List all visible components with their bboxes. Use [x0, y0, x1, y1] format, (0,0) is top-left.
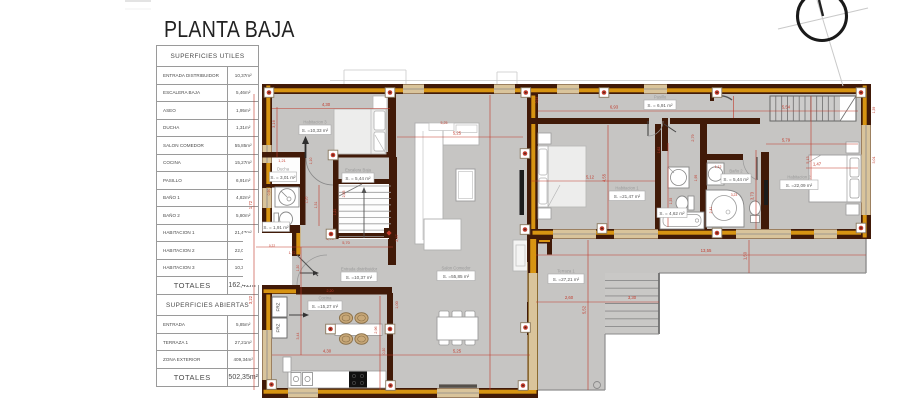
svg-text:S. =22,09 m²: S. =22,09 m² — [786, 183, 813, 188]
svg-text:1,72: 1,72 — [248, 200, 253, 209]
svg-text:Habitacion 2: Habitacion 2 — [787, 175, 811, 180]
svg-text:4,55: 4,55 — [602, 173, 607, 182]
svg-text:1,21: 1,21 — [333, 209, 337, 216]
svg-text:3,23: 3,23 — [731, 193, 738, 197]
svg-text:Baño 2: Baño 2 — [729, 169, 743, 174]
svg-text:5,13: 5,13 — [806, 156, 810, 163]
svg-text:S. =10,33 m²: S. =10,33 m² — [302, 128, 329, 133]
svg-text:1,50: 1,50 — [743, 251, 748, 260]
svg-text:3,01: 3,01 — [872, 157, 876, 164]
svg-text:2,79: 2,79 — [691, 134, 695, 141]
svg-text:1,47: 1,47 — [813, 162, 822, 167]
svg-text:1,00: 1,00 — [395, 301, 399, 308]
svg-text:3,30: 3,30 — [628, 295, 637, 300]
svg-text:1,95: 1,95 — [694, 175, 698, 182]
svg-text:0,93: 0,93 — [535, 97, 539, 104]
svg-text:S. = 3,01 m²: S. = 3,01 m² — [270, 175, 296, 180]
svg-text:2,41: 2,41 — [709, 207, 713, 214]
svg-text:S. = 5,44 m²: S. = 5,44 m² — [723, 177, 749, 182]
svg-text:FRZ: FRZ — [276, 302, 281, 311]
svg-text:S. =15,27 m²: S. =15,27 m² — [312, 304, 339, 309]
svg-text:1,12: 1,12 — [715, 165, 722, 169]
svg-text:6,93: 6,93 — [610, 105, 619, 110]
svg-text:3,16: 3,16 — [271, 119, 276, 128]
svg-text:Entrada distribuidor: Entrada distribuidor — [341, 267, 378, 272]
svg-text:Pasillo: Pasillo — [654, 95, 667, 100]
svg-text:3,73: 3,73 — [750, 191, 755, 200]
svg-text:2,20: 2,20 — [327, 289, 334, 293]
svg-text:3,44: 3,44 — [296, 333, 300, 340]
svg-text:Terraza 1: Terraza 1 — [557, 269, 575, 274]
svg-text:5,54: 5,54 — [782, 105, 791, 110]
svg-text:1,72: 1,72 — [289, 251, 296, 255]
svg-text:5,25: 5,25 — [441, 121, 448, 125]
svg-text:2,47: 2,47 — [395, 234, 399, 241]
svg-text:1,39: 1,39 — [872, 107, 876, 114]
svg-text:0,90: 0,90 — [267, 189, 271, 196]
svg-text:1,35: 1,35 — [669, 198, 673, 205]
svg-text:S. =21,47 m²: S. =21,47 m² — [614, 194, 641, 199]
svg-text:1,35: 1,35 — [305, 197, 309, 204]
svg-text:1,30: 1,30 — [296, 265, 300, 272]
svg-text:1,21: 1,21 — [278, 159, 285, 163]
svg-text:2,96: 2,96 — [374, 326, 378, 333]
svg-text:5,79: 5,79 — [782, 138, 791, 143]
svg-text:4,30: 4,30 — [322, 102, 331, 107]
svg-text:S. =10,37 m²: S. =10,37 m² — [346, 275, 373, 280]
svg-text:2,60: 2,60 — [565, 295, 574, 300]
svg-text:Salon Comedor: Salon Comedor — [441, 266, 471, 271]
svg-text:S. = 6,91 m²: S. = 6,91 m² — [647, 103, 673, 108]
svg-text:5,12: 5,12 — [586, 175, 595, 180]
svg-text:Habitacion 3: Habitacion 3 — [303, 120, 327, 125]
svg-text:S. = 5,44 m²: S. = 5,44 m² — [345, 176, 371, 181]
svg-text:S. =55,85 m²: S. =55,85 m² — [443, 274, 470, 279]
svg-text:FRZ: FRZ — [276, 323, 281, 332]
svg-text:Escalera Baja: Escalera Baja — [345, 168, 372, 173]
svg-text:Habitacion 1: Habitacion 1 — [615, 186, 639, 191]
svg-text:13,55: 13,55 — [701, 248, 712, 253]
svg-text:5,25: 5,25 — [453, 349, 462, 354]
svg-text:2,83: 2,83 — [342, 191, 346, 198]
svg-text:S. = 1,91 m²: S. = 1,91 m² — [263, 225, 289, 230]
svg-text:Ducha: Ducha — [277, 167, 290, 172]
svg-text:S. = 4,62 m²: S. = 4,62 m² — [659, 211, 685, 216]
svg-text:3,22: 3,22 — [248, 295, 253, 304]
svg-text:1,62: 1,62 — [657, 147, 661, 154]
svg-text:1,10: 1,10 — [309, 158, 313, 165]
svg-text:0,30: 0,30 — [382, 348, 386, 355]
svg-text:5,52: 5,52 — [582, 305, 587, 314]
svg-text:0,22: 0,22 — [269, 244, 275, 248]
svg-text:S. =27,21 m²: S. =27,21 m² — [553, 277, 580, 282]
svg-text:5,70: 5,70 — [342, 240, 350, 245]
svg-text:Cocina: Cocina — [318, 296, 332, 301]
svg-text:1,31: 1,31 — [314, 202, 318, 209]
svg-text:4,30: 4,30 — [323, 349, 332, 354]
svg-text:5,25: 5,25 — [453, 131, 462, 136]
